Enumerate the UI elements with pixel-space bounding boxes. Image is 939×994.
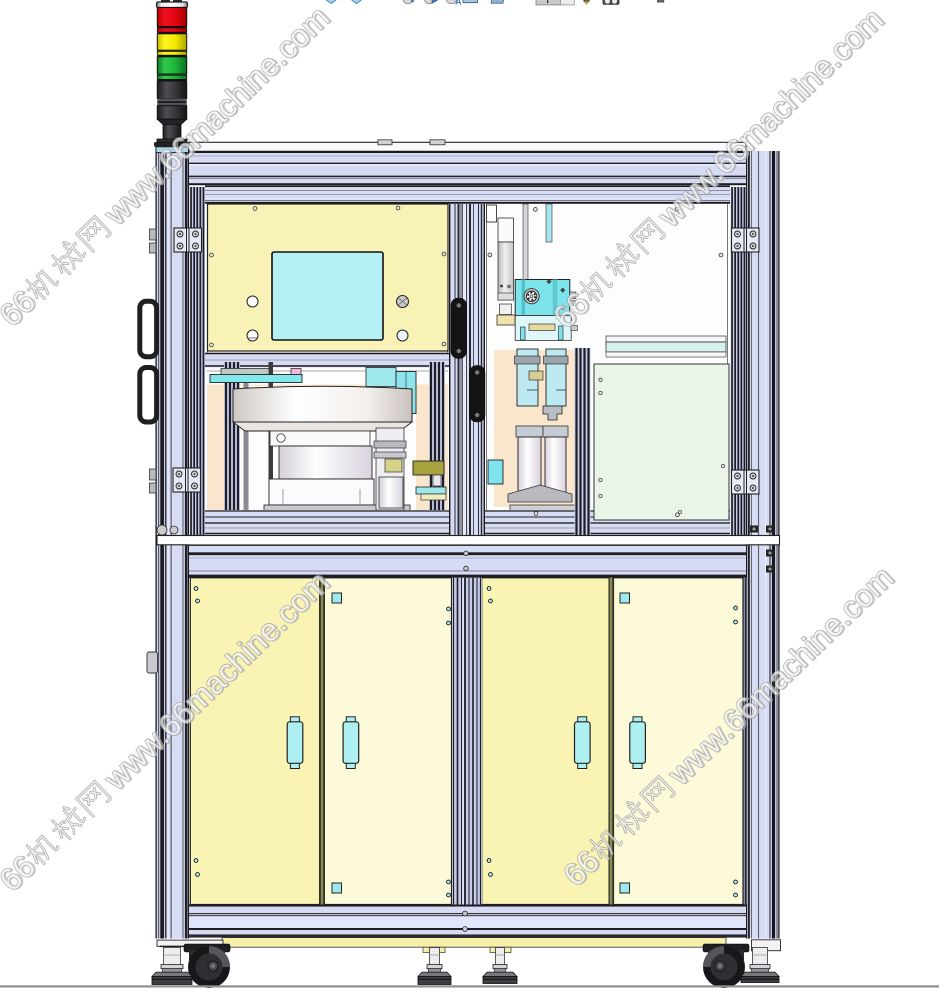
svg-text:A: A	[455, 0, 462, 7]
